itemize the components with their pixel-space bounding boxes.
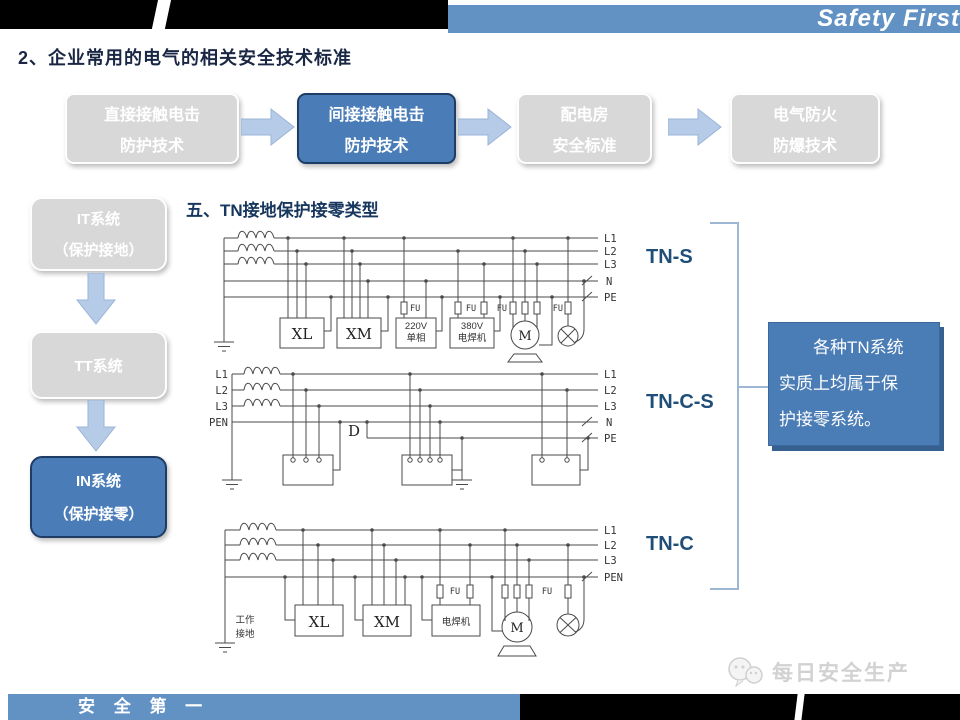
svg-text:L2: L2: [604, 246, 617, 258]
sidebar-box-in-system: IN系统 （保护接零）: [30, 456, 167, 538]
svg-text:D: D: [348, 422, 360, 440]
svg-text:L3: L3: [604, 259, 617, 271]
grouping-bracket: [710, 222, 739, 590]
sidebar-box-line: （保护接地）: [32, 239, 165, 260]
brand-text: Safety First: [817, 5, 960, 32]
svg-text:电焊机: 电焊机: [442, 616, 471, 628]
svg-text:N: N: [606, 276, 612, 288]
svg-text:XM: XM: [374, 613, 400, 631]
watermark: 每日安全生产: [726, 656, 910, 688]
watermark-text: 每日安全生产: [772, 657, 910, 687]
svg-text:220V: 220V: [405, 321, 428, 332]
tnc-circuit-diagram: L1 L2 L3 PEN XL XM 电焊机 M FU FU 工作 接地: [200, 508, 640, 666]
svg-text:L2: L2: [215, 385, 228, 397]
flow-box-line: 防护技术: [67, 132, 237, 156]
flow-box-line: 防护技术: [299, 132, 454, 156]
note-line: 护接零系统。: [779, 402, 929, 438]
flow-box-line: 防爆技术: [732, 132, 878, 156]
svg-text:电焊机: 电焊机: [458, 332, 487, 344]
slogan-text: 安 全 第 一: [78, 697, 209, 716]
bracket-tick: [737, 386, 768, 388]
svg-text:FU: FU: [410, 304, 420, 314]
svg-text:PEN: PEN: [604, 572, 623, 584]
svg-text:XL: XL: [309, 613, 330, 631]
svg-text:M: M: [518, 329, 531, 344]
tn-c-label: TN-C: [646, 533, 694, 556]
flow-arrow-icon: [458, 107, 512, 147]
tnc-wires: [215, 523, 598, 656]
note-box: 各种TN系统 实质上均属于保 护接零系统。: [768, 322, 940, 446]
down-arrow-icon: [75, 273, 117, 325]
svg-text:XM: XM: [346, 325, 372, 343]
svg-text:FU: FU: [450, 587, 460, 597]
svg-text:PEN: PEN: [209, 417, 228, 429]
footer-black-bar: [520, 694, 960, 720]
sidebar-box-line: （保护接零）: [32, 503, 165, 524]
svg-text:L1: L1: [604, 233, 617, 245]
slide: Safety First 2、企业常用的电气的相关安全技术标准 直接接触电击 防…: [0, 0, 960, 720]
svg-text:L1: L1: [604, 525, 617, 537]
svg-text:FU: FU: [466, 304, 476, 314]
page-title: 2、企业常用的电气的相关安全技术标准: [18, 44, 352, 70]
tn-c-s-label: TN-C-S: [646, 391, 714, 414]
header-black-bar: [0, 0, 448, 29]
flow-box-direct-contact: 直接接触电击 防护技术: [65, 93, 239, 164]
svg-text:L1: L1: [215, 369, 228, 381]
tnc-labels: L1 L2 L3 PEN XL XM 电焊机 M FU FU 工作 接地: [235, 525, 622, 640]
note-line: 实质上均属于保: [779, 366, 929, 402]
flow-arrow-icon: [668, 107, 722, 147]
flow-arrow-icon: [241, 107, 295, 147]
sidebar-box-tt-system: TT系统: [30, 331, 167, 399]
note-line: 各种TN系统: [779, 330, 929, 366]
svg-text:L2: L2: [604, 385, 617, 397]
flow-box-power-room: 配电房 安全标准: [517, 93, 652, 164]
svg-text:N: N: [606, 417, 612, 429]
sidebar-box-line: IT系统: [32, 208, 165, 229]
svg-text:L3: L3: [604, 401, 617, 413]
svg-text:380V: 380V: [461, 321, 484, 332]
flow-box-indirect-contact: 间接接触电击 防护技术: [297, 93, 456, 164]
tncs-circuit-diagram: L1 L2 L3 PEN L1 L2 L3 N PE D: [200, 362, 640, 507]
svg-text:PE: PE: [604, 292, 617, 304]
svg-text:L3: L3: [215, 401, 228, 413]
svg-text:单相: 单相: [406, 332, 425, 344]
sidebar-box-line: TT系统: [32, 355, 165, 376]
svg-text:FU: FU: [553, 304, 563, 314]
down-arrow-icon: [75, 400, 117, 452]
svg-text:工作: 工作: [235, 614, 255, 626]
tncs-labels: L1 L2 L3 PEN L1 L2 L3 N PE D: [209, 369, 617, 445]
tncs-wires: [222, 367, 598, 489]
svg-text:XL: XL: [292, 325, 313, 343]
svg-text:L1: L1: [604, 369, 617, 381]
sidebar-box-it-system: IT系统 （保护接地）: [30, 197, 167, 271]
footer-blue-bar: 安 全 第 一: [8, 694, 590, 720]
tns-junction-dots: [286, 236, 586, 299]
flow-box-line: 配电房: [519, 101, 650, 125]
svg-text:M: M: [510, 621, 523, 636]
svg-text:接地: 接地: [235, 628, 255, 640]
tns-circuit-diagram: L1 L2 L3 N PE XL XM 220V 单相 380V 电焊机 M F…: [200, 218, 640, 366]
tn-s-label: TN-S: [646, 246, 693, 269]
brand-banner: Safety First: [448, 5, 960, 33]
flow-box-line: 安全标准: [519, 132, 650, 156]
svg-text:PE: PE: [604, 433, 617, 445]
svg-text:FU: FU: [542, 587, 552, 597]
sidebar-box-line: IN系统: [32, 470, 165, 491]
svg-text:FU: FU: [497, 304, 507, 314]
flow-box-line: 间接接触电击: [299, 101, 454, 125]
flow-box-fire-explosion: 电气防火 防爆技术: [730, 93, 880, 164]
svg-text:L3: L3: [604, 555, 617, 567]
flow-box-line: 电气防火: [732, 101, 878, 125]
flow-box-line: 直接接触电击: [67, 101, 237, 125]
svg-text:L2: L2: [604, 540, 617, 552]
tnc-junction-dots: [283, 528, 586, 579]
chat-bubbles-logo-icon: [726, 656, 766, 688]
